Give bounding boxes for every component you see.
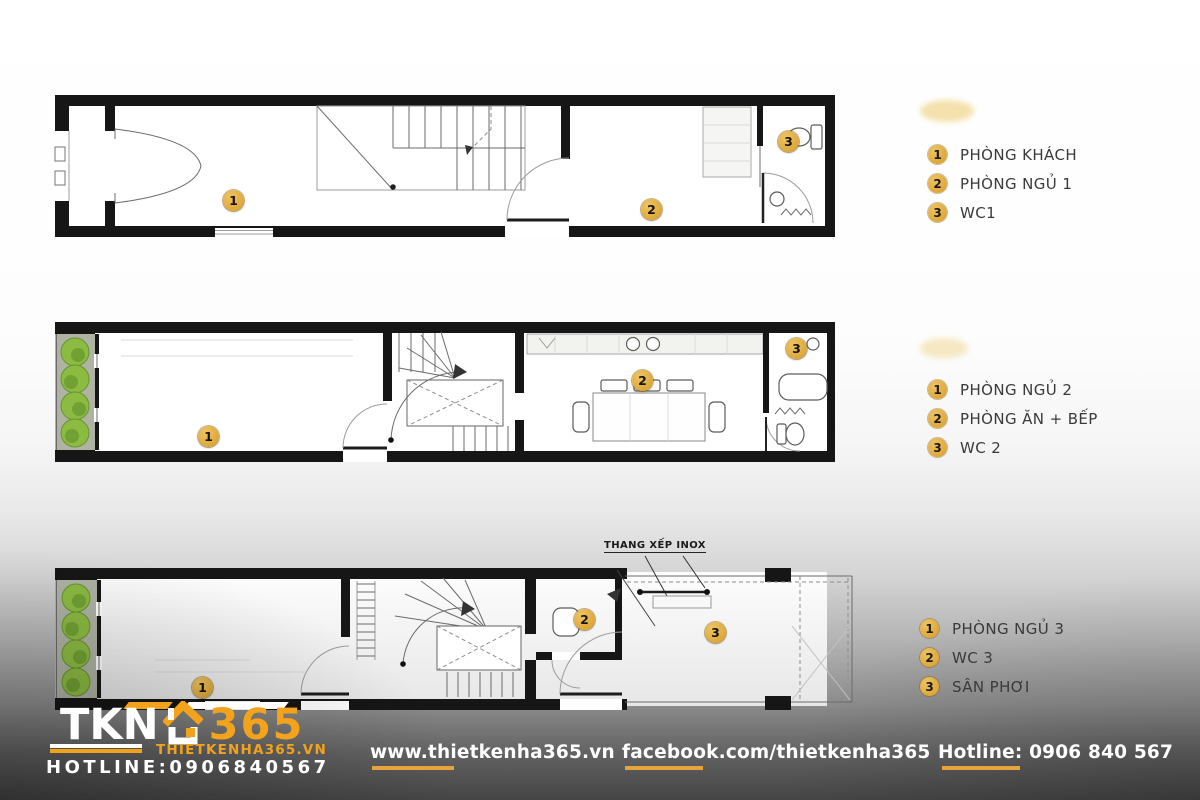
legend-badge: 3	[920, 677, 939, 696]
floor-plan-3: 1 2 3	[55, 568, 855, 710]
bathtub-icon	[779, 374, 827, 400]
logo-text-tkn: TKN	[60, 707, 159, 744]
legend-badge: 2	[920, 648, 939, 667]
legend-badge: 1	[920, 619, 939, 638]
ghost-highlight	[920, 100, 974, 122]
logo-website: THIETKENHA365.VN	[156, 742, 327, 758]
logo-text-365: 365	[209, 707, 305, 744]
balcony-planters	[55, 568, 102, 710]
legend-label: WC 2	[960, 439, 1001, 457]
room-marker-yard: 3	[705, 622, 726, 643]
room-marker-bedroom3: 1	[192, 677, 213, 698]
sink-icon	[627, 338, 640, 351]
legend-floor-2: 1 PHÒNG NGỦ 2 2 PHÒNG ĂN + BẾP 3 WC 2	[928, 375, 1098, 462]
floor-plan-2-drawing	[55, 322, 835, 462]
legend-badge: 3	[928, 438, 947, 457]
ghost-highlight	[920, 338, 968, 358]
toilet-icon	[786, 423, 804, 445]
legend-badge: 2	[928, 174, 947, 193]
legend-badge: 1	[928, 380, 947, 399]
floor-plan-1: 1 2 3	[55, 95, 835, 237]
kitchen-counter	[527, 334, 763, 354]
footer-website-underline	[372, 766, 454, 770]
legend-label: PHÒNG KHÁCH	[960, 146, 1077, 164]
legend-item: 2 PHÒNG NGỦ 1	[928, 169, 1077, 198]
floor-plan-1-drawing	[55, 95, 835, 237]
balcony-planters	[55, 322, 100, 462]
legend-item: 2 WC 3	[920, 643, 1064, 672]
footer-hotline-underline	[942, 766, 1020, 770]
sink-icon	[807, 338, 819, 350]
legend-item: 1 PHÒNG NGỦ 3	[920, 614, 1064, 643]
poster-canvas: 1 2 3	[0, 0, 1200, 800]
logo-underline-white	[50, 744, 142, 748]
footer-website: www.thietkenha365.vn	[370, 742, 615, 763]
room-marker-wc1: 3	[778, 131, 799, 152]
legend-label: WC1	[960, 204, 996, 222]
footer-facebook-underline	[625, 766, 703, 770]
room-marker-bedroom1: 2	[641, 199, 662, 220]
sink-icon	[647, 338, 660, 351]
footer-hotline: Hotline: 0906 840 567	[938, 742, 1173, 763]
legend-badge: 2	[928, 409, 947, 428]
floor-plan-2: 1 2 3	[55, 322, 835, 462]
room-marker-kitchen: 2	[632, 370, 653, 391]
legend-label: SÂN PHƠI	[952, 678, 1030, 696]
legend-label: PHÒNG NGỦ 2	[960, 381, 1072, 399]
legend-badge: 3	[928, 203, 947, 222]
legend-item: 1 PHÒNG KHÁCH	[928, 140, 1077, 169]
toilet-icon	[811, 125, 822, 149]
room-marker-wc3: 2	[574, 609, 595, 630]
legend-label: PHÒNG NGỦ 3	[952, 620, 1064, 638]
logo-underline-orange	[50, 749, 142, 753]
legend-floor-3: 1 PHÒNG NGỦ 3 2 WC 3 3 SÂN PHƠI	[920, 614, 1064, 701]
legend-item: 1 PHÒNG NGỦ 2	[928, 375, 1098, 404]
sink-icon	[770, 192, 784, 206]
logo-house-icon	[163, 701, 203, 745]
legend-floor-1: 1 PHÒNG KHÁCH 2 PHÒNG NGỦ 1 3 WC1	[928, 140, 1077, 227]
room-marker-living: 1	[223, 190, 244, 211]
legend-label: WC 3	[952, 649, 993, 667]
floor-plan-3-drawing	[55, 568, 855, 710]
room-marker-wc2: 3	[786, 338, 807, 359]
legend-item: 2 PHÒNG ĂN + BẾP	[928, 404, 1098, 433]
legend-item: 3 WC 2	[928, 433, 1098, 462]
legend-label: PHÒNG ĂN + BẾP	[960, 410, 1098, 428]
ladder-annotation: THANG XẾP INOX	[604, 540, 706, 553]
legend-item: 3 SÂN PHƠI	[920, 672, 1064, 701]
footer-facebook: facebook.com/thietkenha365	[622, 742, 931, 763]
legend-label: PHÒNG NGỦ 1	[960, 175, 1072, 193]
logo: TKN 365	[60, 701, 304, 744]
legend-badge: 1	[928, 145, 947, 164]
legend-item: 3 WC1	[928, 198, 1077, 227]
room-marker-bedroom2: 1	[198, 426, 219, 447]
logo-hotline: HOTLINE:0906840567	[46, 757, 330, 778]
